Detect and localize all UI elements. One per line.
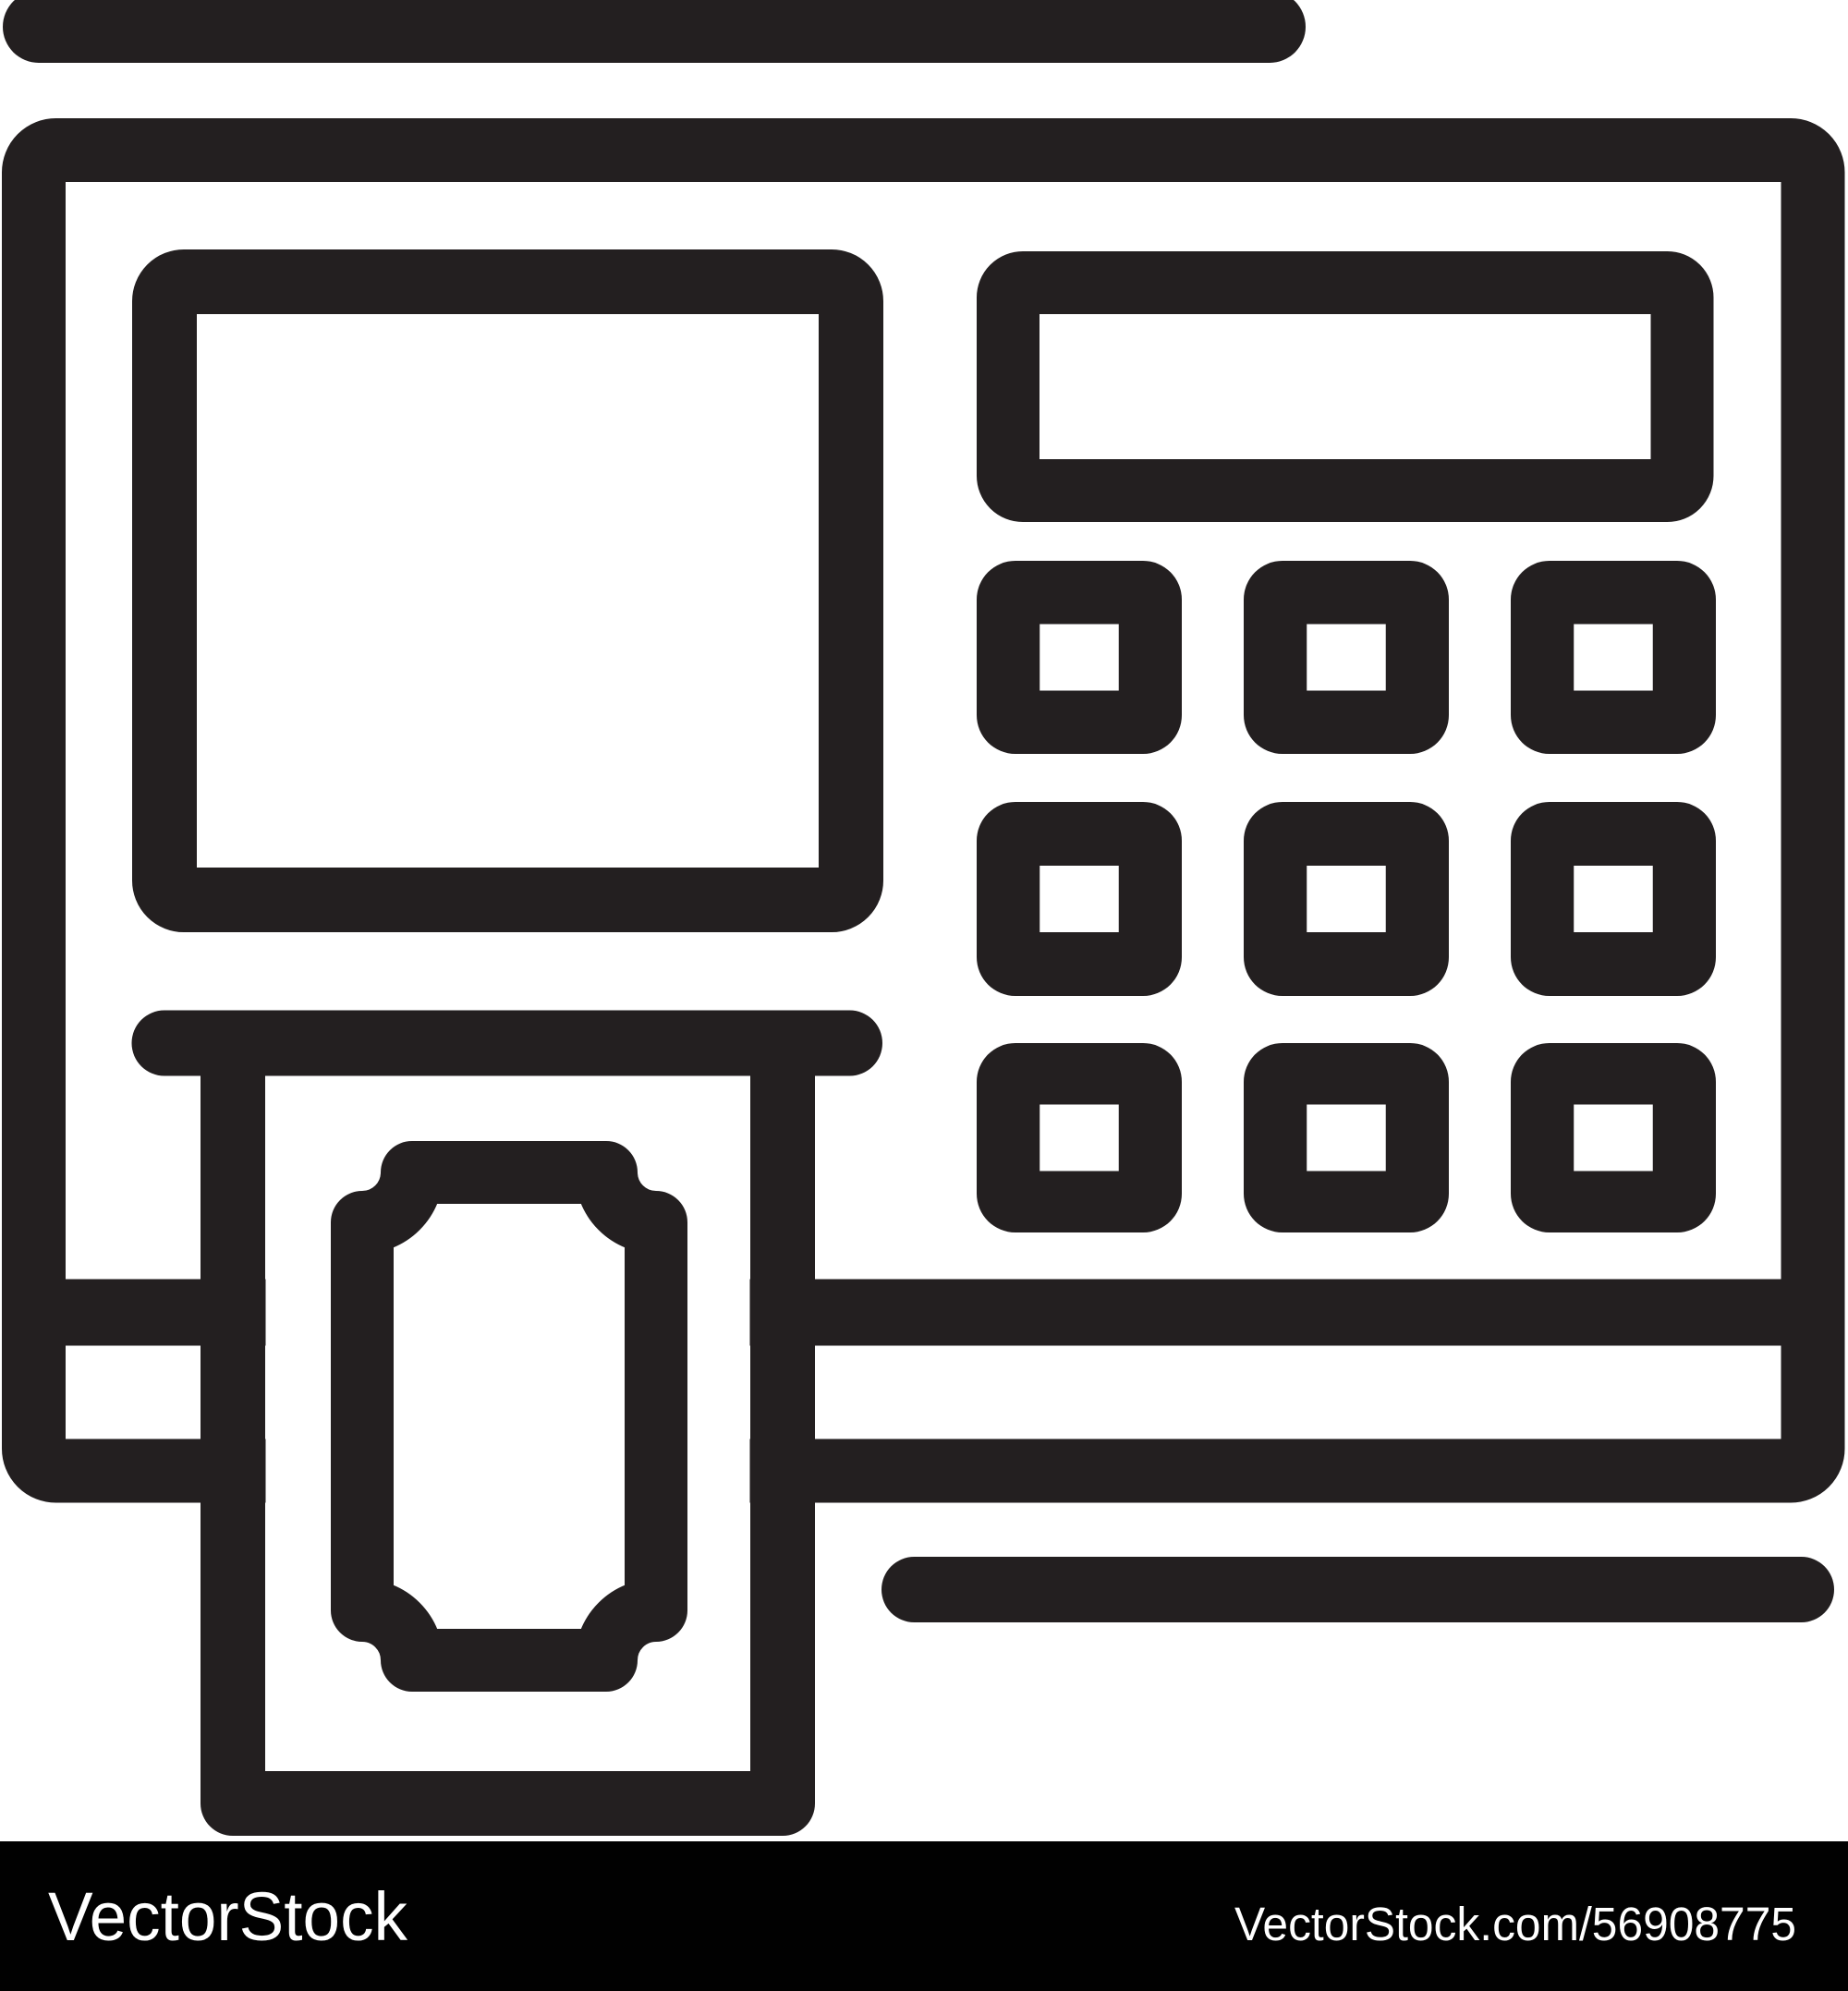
svg-text:VectorStock: VectorStock xyxy=(48,1878,408,1955)
svg-text:VectorStock.com/56908775: VectorStock.com/56908775 xyxy=(1234,1898,1796,1950)
